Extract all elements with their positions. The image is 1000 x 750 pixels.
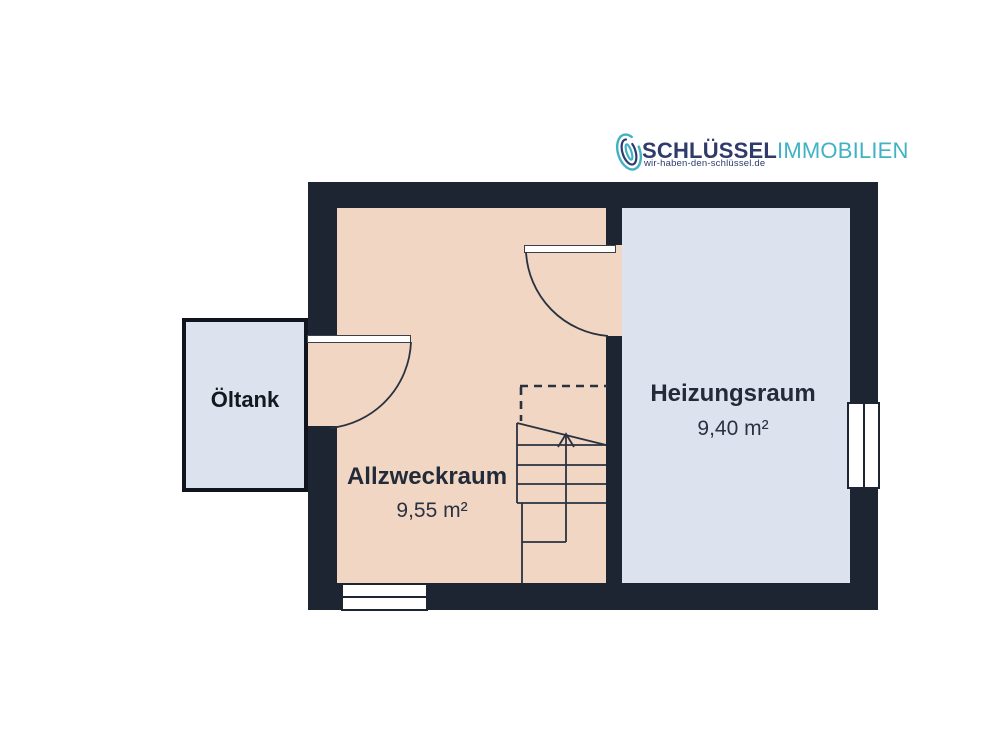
logo-tagline: wir-haben-den-schlüssel.de: [644, 158, 765, 169]
label-heizungsraum: Heizungsraum: [650, 380, 815, 408]
window-pane-divider: [343, 596, 426, 598]
window-pane-divider: [863, 404, 865, 487]
door-opening-divider-wall: [606, 245, 622, 336]
window-bottom-wall: [341, 583, 428, 611]
label-allzweckraum: Allzweckraum: [347, 463, 507, 491]
door-leaf-heizungsraum: [524, 245, 616, 253]
area-allzweckraum: 9,55 m²: [396, 499, 467, 523]
label-oeltank: Öltank: [211, 387, 279, 413]
door-leaf-oeltank: [307, 335, 411, 343]
door-opening-left-wall: [308, 335, 337, 426]
area-heizungsraum: 9,40 m²: [697, 417, 768, 441]
window-right-wall: [847, 402, 880, 489]
fingerprint-icon: [615, 130, 645, 174]
room-allzweckraum: [337, 208, 606, 583]
logo-brand-secondary: IMMOBILIEN: [777, 138, 909, 163]
